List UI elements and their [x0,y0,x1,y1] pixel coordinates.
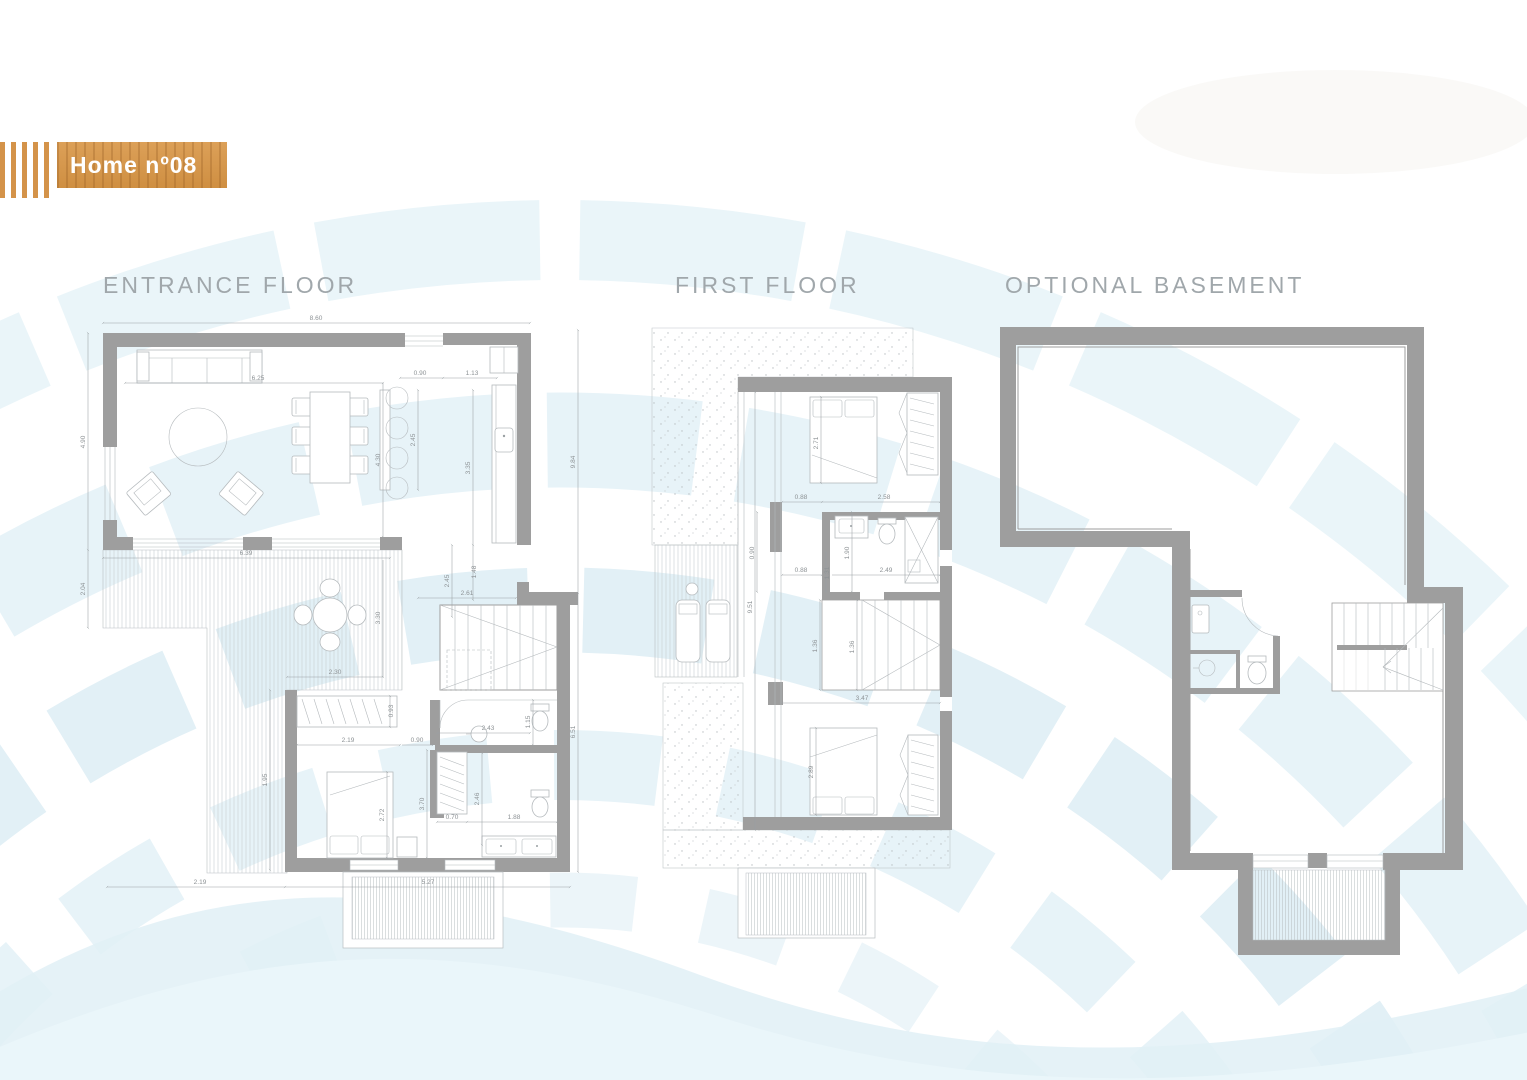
terrace [655,545,737,677]
dim-label: 2.30 [329,669,342,676]
shower [1193,660,1215,676]
dim-label: 1.36 [812,639,819,652]
page: { "header": { "title": "Home nº08" }, "p… [0,0,1527,1080]
dim-label: 0.88 [795,567,808,574]
dim-label: 5.27 [422,879,435,886]
side-table [686,583,698,595]
bathroom [1190,590,1280,694]
sofa [137,350,262,383]
dim-label: 0.90 [411,737,424,744]
faint-logo-watermark [1135,70,1527,174]
bed [810,728,877,815]
dim-label: 8.60 [310,315,323,322]
round-rug [169,408,227,466]
bathroom [437,752,556,857]
dim-label: 2.49 [880,567,893,574]
dim-label: 2.89 [808,765,815,778]
toilet-icon [531,790,549,817]
dim-label: 1.15 [525,715,532,728]
shower [905,517,938,583]
basement-plan [990,315,1480,955]
dim-label: 6.25 [252,375,265,382]
dim-label: 4.90 [80,435,87,448]
dim-label: 3.70 [419,797,426,810]
dim-label: 1.31 [824,566,831,579]
entry-closet [490,347,518,373]
door-swing [1242,598,1278,636]
wardrobe [297,696,397,727]
dim-label: 0.90 [414,370,427,377]
linen-closet [437,752,467,814]
dim-label: 2.19 [342,737,355,744]
dim-label: 2.72 [379,808,386,821]
dim-label: 3.47 [856,695,869,702]
stairs [822,600,940,690]
patio [738,868,875,938]
sink-icon [1192,605,1209,633]
toilet-icon [531,704,549,731]
dim-label: 2.43 [482,725,495,732]
dim-label: 9.84 [570,455,577,468]
dim-label: 2.45 [410,433,417,446]
dim-label: 2.19 [194,879,207,886]
dim-label: 4.30 [375,453,382,466]
dim-label: 1.13 [466,370,479,377]
toilet-icon [878,518,896,544]
brand-stripes-icon [0,142,52,198]
dining-set [292,392,368,483]
dim-label: 2.71 [813,436,820,449]
dim-label: 6.51 [570,725,577,738]
dim-label: 3.35 [465,461,472,474]
wardrobe [899,393,938,475]
wall-inner-lines [1018,347,1443,853]
bedside-table [397,837,417,857]
plan-title-first: FIRST FLOOR [675,272,860,299]
dim-label: 0.93 [388,704,395,717]
dim-label: 1.95 [262,773,269,786]
dim-label: 9.51 [747,600,754,613]
entrance-floor-plan: 8.60 4.90 2.04 6.25 4.30 0.90 1.13 2.45 … [60,315,600,965]
page-title: Home nº08 [57,152,197,179]
toilet-icon [1248,656,1266,684]
stairs [440,605,557,690]
dim-label: 1.36 [849,640,856,653]
plan-title-entrance: ENTRANCE FLOOR [103,272,357,299]
dim-label: 2.04 [80,582,87,595]
dim-label: 0.70 [446,814,459,821]
armchair [126,471,171,516]
first-floor-plan: 2.71 0.88 2.58 0.90 9.51 0.88 1.31 2.49 … [645,315,985,955]
vanity [482,836,556,857]
window-wall-lines [738,392,781,817]
dim-label: 1.90 [844,546,851,559]
dim-label: 2.46 [474,792,481,805]
brand-plate: Home nº08 [57,142,227,188]
dim-label: 2.45 [444,574,451,587]
kitchen-counter [492,385,516,543]
wc-room [440,700,557,742]
bed [810,397,877,483]
dim-label: 1.48 [471,565,478,578]
wardrobe [900,735,938,815]
dim-label: 0.90 [749,546,756,559]
dim-label: 0.88 [795,494,808,501]
stairs [1332,603,1443,691]
dim-label: 2.61 [461,590,474,597]
dim-label: 3.30 [375,611,382,624]
dim-label: 2.58 [878,494,891,501]
dim-label: 6.39 [240,550,253,557]
sink-icon [495,428,513,452]
plan-title-basement: OPTIONAL BASEMENT [1005,272,1304,299]
dim-label: 1.88 [508,814,521,821]
vanity [835,516,868,538]
armchair [219,471,264,516]
